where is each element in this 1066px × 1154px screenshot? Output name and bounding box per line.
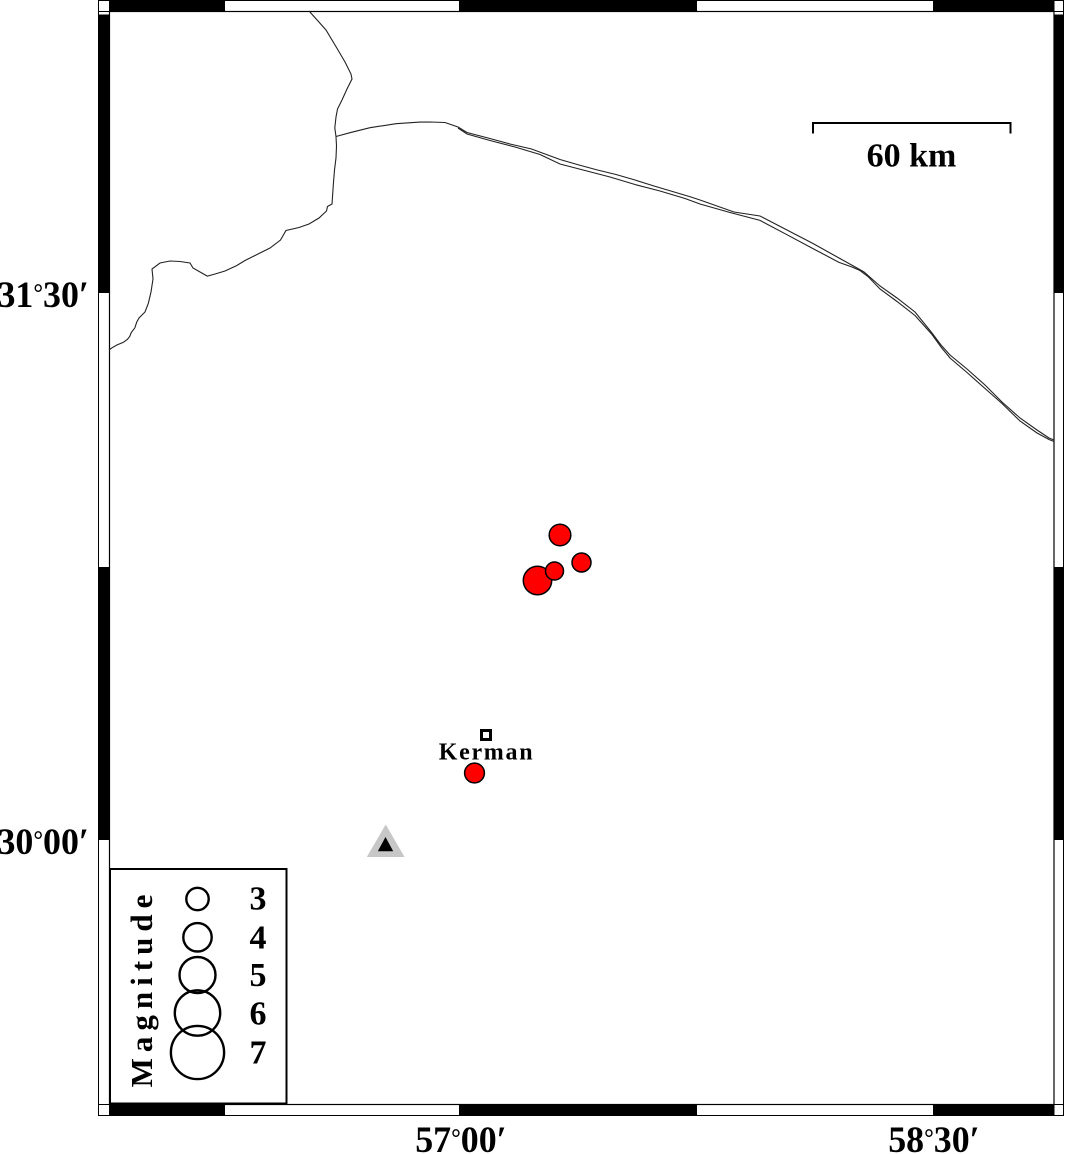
svg-text:30°00′: 30°00′ xyxy=(0,822,89,863)
svg-text:60 km: 60 km xyxy=(867,138,957,175)
svg-text:57°00′: 57°00′ xyxy=(415,1120,507,1154)
svg-text:31°30′: 31°30′ xyxy=(0,275,89,316)
svg-text:Kerman: Kerman xyxy=(439,740,535,766)
svg-text:6: 6 xyxy=(250,996,267,1033)
svg-text:3: 3 xyxy=(250,881,267,918)
svg-text:58°30′: 58°30′ xyxy=(888,1120,980,1154)
svg-text:7: 7 xyxy=(250,1035,267,1072)
svg-text:Magnitude: Magnitude xyxy=(124,889,159,1088)
svg-text:4: 4 xyxy=(250,920,267,957)
svg-text:5: 5 xyxy=(250,957,267,994)
